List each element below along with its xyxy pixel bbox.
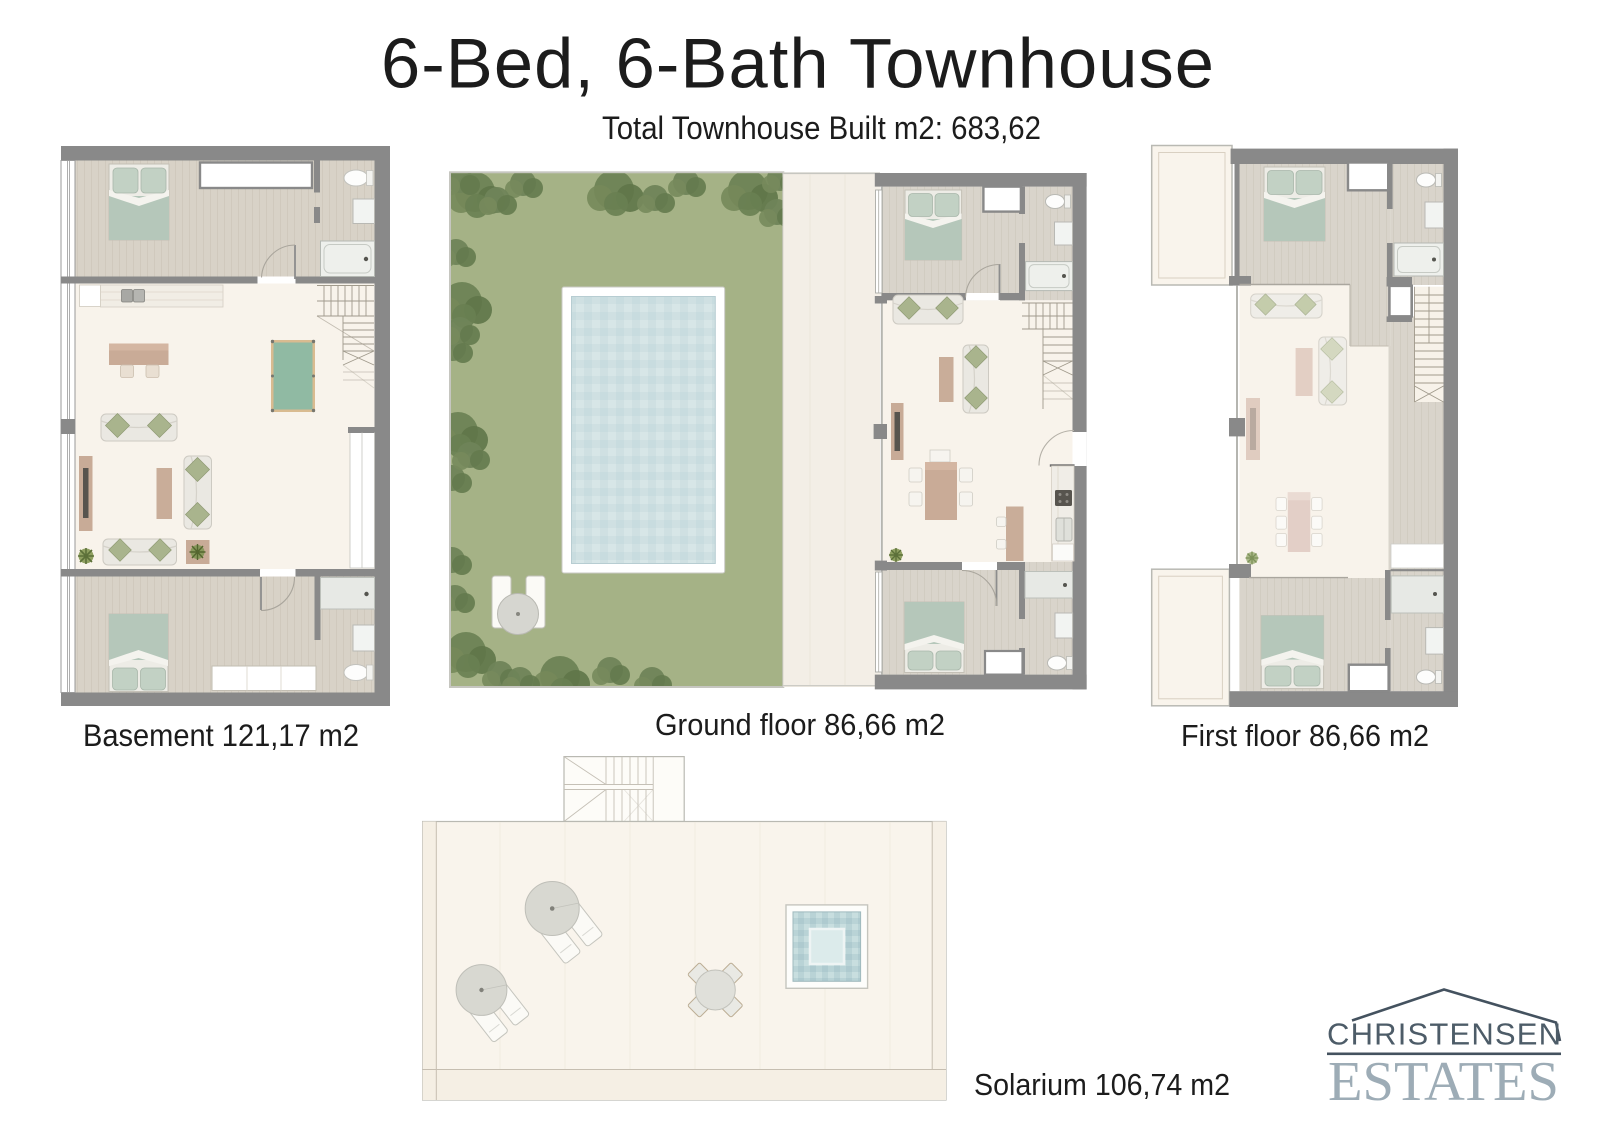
svg-text:Total Townhouse Built m2: 683,: Total Townhouse Built m2: 683,62 [602,110,1041,146]
svg-text:CHRISTENSEN: CHRISTENSEN [1327,1017,1561,1052]
svg-text:Ground floor 86,66 m2: Ground floor 86,66 m2 [655,707,945,742]
svg-text:6-Bed, 6-Bath Townhouse: 6-Bed, 6-Bath Townhouse [381,24,1214,103]
svg-text:ESTATES: ESTATES [1328,1051,1559,1113]
svg-text:First floor 86,66 m2: First floor 86,66 m2 [1181,718,1429,753]
svg-text:Solarium 106,74 m2: Solarium 106,74 m2 [974,1067,1230,1102]
svg-text:Basement 121,17 m2: Basement 121,17 m2 [83,717,359,753]
